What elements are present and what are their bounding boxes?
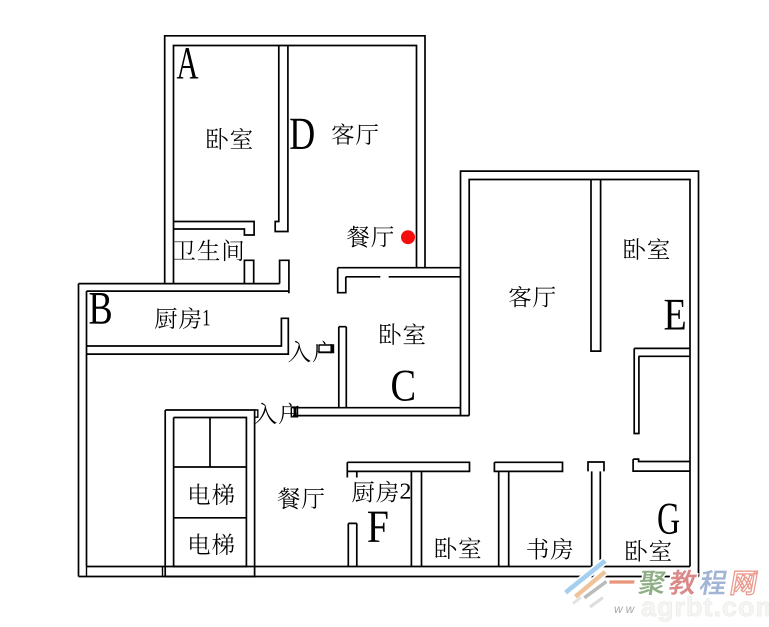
svg-text:agrbt.com: agrbt.com [641, 592, 769, 622]
svg-text:ww: ww [614, 602, 637, 616]
